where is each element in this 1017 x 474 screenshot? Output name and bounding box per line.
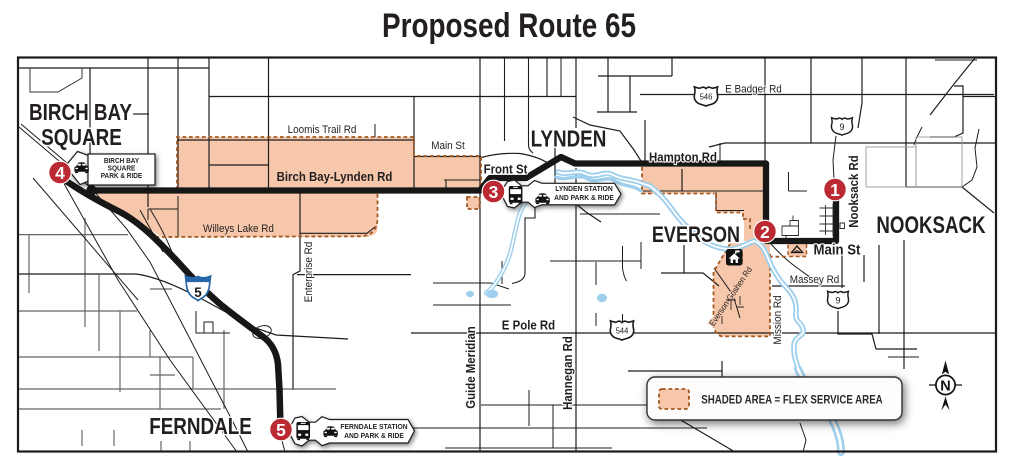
svg-text:Proposed Route 65: Proposed Route 65 [382,6,636,44]
svg-text:BIRCH BAY: BIRCH BAY [104,158,140,165]
svg-text:BIRCH BAY: BIRCH BAY [29,100,132,125]
svg-text:SQUARE: SQUARE [108,165,136,172]
svg-text:Main St: Main St [431,141,465,153]
svg-text:Massey Rd: Massey Rd [790,275,840,287]
svg-text:FERNDALE STATION: FERNDALE STATION [340,423,407,431]
svg-text:1: 1 [830,180,840,200]
svg-text:Mission Rd: Mission Rd [773,295,785,344]
svg-text:Loomis Trail Rd: Loomis Trail Rd [288,125,357,137]
svg-text:2: 2 [760,222,770,242]
svg-text:LYNDEN: LYNDEN [531,127,607,152]
svg-text:546: 546 [700,92,713,101]
svg-text:544: 544 [616,326,629,335]
svg-text:FERNDALE: FERNDALE [149,414,252,439]
svg-text:9: 9 [835,295,840,305]
svg-text:N: N [940,378,950,394]
svg-text:4: 4 [55,163,65,183]
svg-text:PARK & RIDE: PARK & RIDE [101,173,143,180]
svg-text:LYNDEN STATION: LYNDEN STATION [555,185,613,193]
svg-text:SHADED AREA = FLEX SERVICE ARE: SHADED AREA = FLEX SERVICE AREA [701,394,882,407]
svg-text:Enterprise Rd: Enterprise Rd [304,242,316,303]
svg-text:Hannegan Rd: Hannegan Rd [560,336,575,410]
svg-text:9: 9 [839,122,844,132]
svg-text:E Badger Rd: E Badger Rd [725,84,782,96]
svg-text:5: 5 [194,285,202,300]
svg-text:5: 5 [276,420,286,440]
svg-text:AND PARK & RIDE: AND PARK & RIDE [344,432,404,440]
svg-text:Hampton Rd: Hampton Rd [649,150,717,165]
svg-text:3: 3 [489,182,499,202]
svg-text:EVERSON: EVERSON [652,223,740,247]
svg-text:Willeys Lake Rd: Willeys Lake Rd [203,224,274,236]
svg-text:AND PARK & RIDE: AND PARK & RIDE [554,194,614,202]
svg-text:Front St: Front St [484,162,528,177]
svg-text:E Pole Rd: E Pole Rd [502,318,555,333]
svg-text:NOOKSACK: NOOKSACK [876,212,986,239]
svg-text:Main St: Main St [814,241,861,258]
svg-text:Guide Meridian: Guide Meridian [463,326,478,409]
svg-text:Nooksack Rd: Nooksack Rd [846,155,861,227]
svg-text:Birch Bay-Lynden Rd: Birch Bay-Lynden Rd [277,169,393,184]
svg-text:SQUARE: SQUARE [41,125,122,150]
